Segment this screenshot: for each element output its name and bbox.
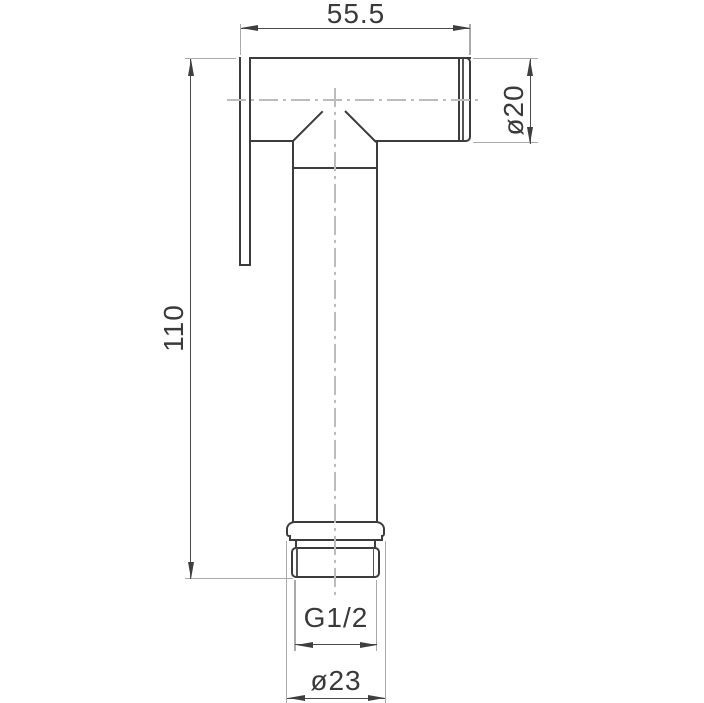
dim-110-arrow-bottom	[188, 562, 194, 579]
centerline-horizontal	[227, 99, 478, 101]
dim-g12-ext-right	[376, 580, 377, 651]
dim-o23-arrow-left	[288, 695, 305, 701]
dim-g12-arrow-left	[296, 642, 313, 648]
tube-wall-left	[292, 141, 294, 522]
dim-110-line	[190, 59, 191, 579]
drawing-canvas: 55.5 110 ø20 G1/2 ø23	[0, 0, 704, 703]
dim-g12-arrow-right	[360, 642, 377, 648]
dim-o23-ext-right	[385, 541, 386, 703]
head-top-edge	[239, 57, 471, 59]
thread-chamfer-left	[296, 548, 298, 576]
dim-g12-label: G1/2	[304, 602, 369, 634]
dim-55-arrow-left	[241, 25, 258, 31]
head-bottom-edge-left	[249, 140, 294, 142]
tube-wall-right	[376, 141, 378, 522]
dim-110-arrow-top	[188, 59, 194, 76]
dim-55-arrow-right	[453, 25, 470, 31]
dim-55-label: 55.5	[327, 0, 386, 30]
spray-face-plate	[239, 57, 251, 266]
dim-g12-ext-left	[294, 580, 295, 651]
dim-110-label: 110	[158, 304, 190, 352]
dim-o23-ext-left	[286, 541, 287, 703]
dim-110-ext-bottom	[185, 578, 293, 579]
head-bottom-edge-right	[375, 140, 460, 142]
dim-o23-label: ø23	[310, 665, 361, 697]
dim-o23-arrow-right	[368, 695, 385, 701]
cone-edge-left	[292, 111, 323, 142]
cone-edge-right	[344, 110, 377, 143]
centerline-vertical	[334, 88, 336, 596]
thread-chamfer-right	[373, 548, 375, 576]
dim-o20-label: ø20	[498, 84, 530, 135]
dim-o20-arrow-top	[527, 59, 533, 76]
